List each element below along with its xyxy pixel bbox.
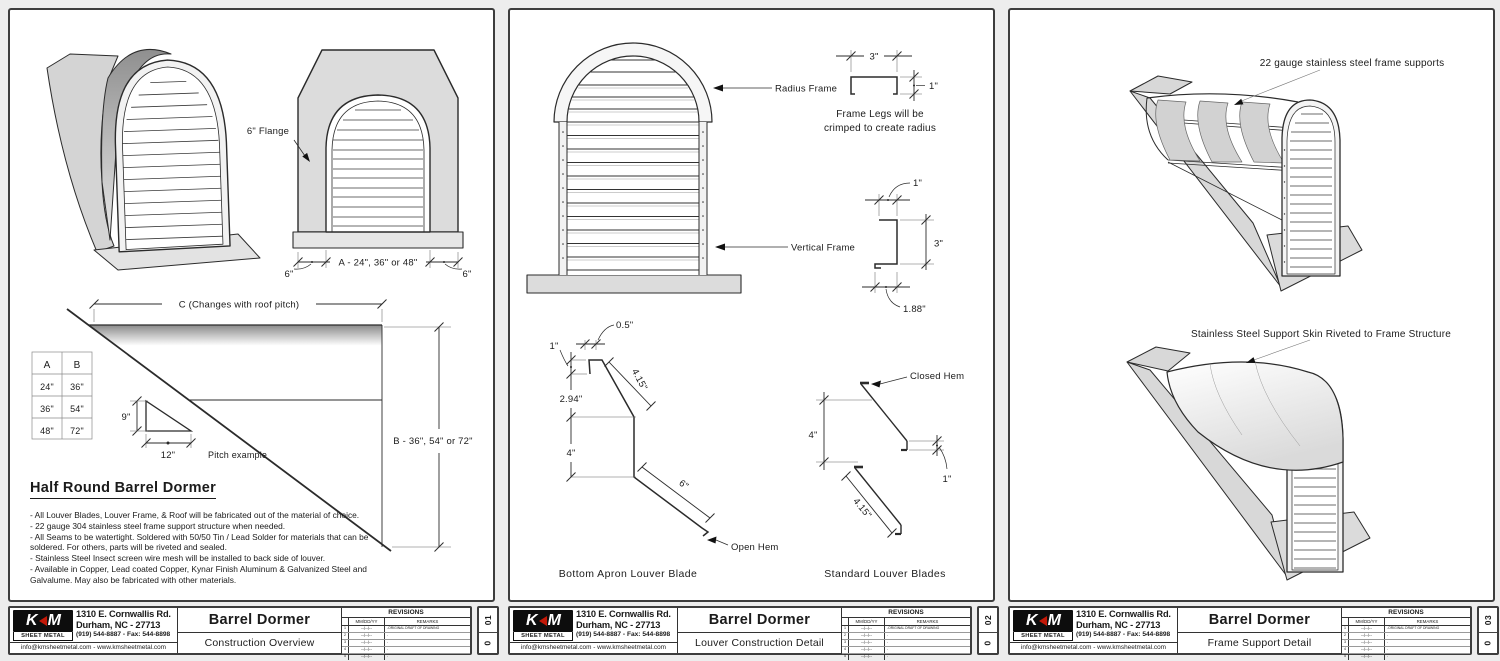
six-right-dim-label: 6"	[462, 269, 471, 280]
rev-row: 5--/--/---	[1342, 654, 1470, 660]
km-logo: KM	[13, 610, 73, 632]
revisions-table: REVISIONS MM/DD/YYREMARKS 1--/--/---ORIG…	[342, 608, 470, 653]
rev-row: 3--/--/---	[842, 640, 970, 647]
rev-remarks-header: REMARKS	[385, 618, 470, 625]
crimp-note-line1: Frame Legs will be	[836, 109, 924, 120]
km-logo: KM	[513, 610, 573, 632]
skin-arrow-icon	[1246, 357, 1256, 363]
skin-label: Stainless Steel Support Skin Riveted to …	[1191, 329, 1451, 340]
rev-row: 2--/--/---	[342, 633, 470, 640]
dim-3in: 3"	[934, 239, 943, 250]
sheet-construction-overview: 6" Flange A - 24", 36" or 48" 6" 6" C (C…	[8, 0, 503, 661]
iso-louver-face	[113, 58, 231, 252]
company-cell: KM SHEET METAL 1310 E. Cornwallis Rd. Du…	[1010, 608, 1178, 653]
rev-remarks-header: REMARKS	[1385, 618, 1470, 625]
supports-annotation: 22 gauge stainless steel frame supports	[1234, 58, 1444, 105]
dim-1in: 1"	[913, 178, 922, 189]
address-line2: Durham, NC - 27713	[576, 620, 676, 631]
rev-date-header: MM/DD/YY	[1349, 618, 1385, 625]
rev-num-col	[1342, 618, 1349, 625]
logo-arrow-icon	[39, 616, 47, 626]
phone-line: (919) 544-8887 - Fax: 544-8898	[76, 631, 176, 639]
contact-line: info@kmsheetmetal.com - www.kmsheetmetal…	[10, 642, 177, 653]
vertical-frame-label: Vertical Frame	[791, 243, 855, 254]
rev-date-header: MM/DD/YY	[849, 618, 885, 625]
logo-tagline: SHEET METAL	[513, 632, 573, 641]
revisions-header: REVISIONS	[842, 608, 970, 618]
six-left-dim-label: 6"	[284, 269, 293, 280]
table-cell: 48"	[40, 426, 54, 436]
revisions-header: REVISIONS	[342, 608, 470, 618]
louver-drawing-canvas: Radius Frame Vertical Frame 3" 1" Frame …	[510, 10, 993, 600]
radius-frame-profile	[836, 50, 925, 101]
table-header-b: B	[74, 360, 81, 371]
sheet-louver-detail: Radius Frame Vertical Frame 3" 1" Frame …	[508, 0, 1003, 661]
revision-number: 0	[1483, 640, 1493, 645]
crimp-note-line2: crimped to create radius	[824, 123, 936, 134]
sheet-subtitle: Construction Overview	[178, 633, 341, 653]
revisions-subheader: MM/DD/YYREMARKS	[842, 618, 970, 626]
address-line2: Durham, NC - 27713	[76, 620, 176, 631]
title-cell: Barrel Dormer Frame Support Detail	[1178, 608, 1342, 653]
support-skin-surface	[1167, 362, 1343, 470]
phone-line: (919) 544-8887 - Fax: 544-8898	[576, 631, 676, 639]
frame-support-ribs	[1156, 100, 1284, 163]
logo-k: K	[1026, 612, 1037, 630]
table-cell: 36"	[40, 404, 54, 414]
iso-dormer-view	[47, 49, 260, 270]
frame-skeleton-iso	[1130, 76, 1362, 291]
rise-dim-label: 9"	[121, 412, 130, 423]
run-dim-label: 12"	[161, 450, 176, 461]
radius-frame-arrow-icon	[713, 85, 723, 92]
dim-415in: 4.15"	[629, 367, 649, 392]
apron-blade-caption: Bottom Apron Louver Blade	[559, 568, 697, 580]
contact-line: info@kmsheetmetal.com - www.kmsheetmetal…	[510, 642, 677, 653]
vertical-frame-profile	[862, 183, 934, 307]
table-header-a: A	[44, 360, 51, 371]
closed-hem-label: Closed Hem	[910, 371, 964, 382]
sheet-number-box: 01 0	[477, 606, 499, 655]
sheet-subtitle: Louver Construction Detail	[678, 633, 841, 653]
closed-hem-arrow-icon	[871, 381, 881, 388]
km-logo: KM	[1013, 610, 1073, 632]
dim-1in: 1"	[942, 474, 951, 485]
standard-blades-caption: Standard Louver Blades	[824, 568, 945, 580]
rev-row: 4--/--/---	[1342, 647, 1470, 654]
front-elevation	[293, 50, 463, 248]
dim-4in: 4"	[566, 448, 575, 459]
rev-row: 1--/--/---ORIGINAL DRAFT OF DRAWING	[1342, 626, 1470, 633]
logo-arrow-icon	[1039, 616, 1047, 626]
open-hem-arrow-icon	[707, 537, 717, 544]
drawing-notes: - All Louver Blades, Louver Frame, & Roo…	[30, 510, 384, 586]
supports-label: 22 gauge stainless steel frame supports	[1260, 58, 1445, 69]
drawing-area-louver: Radius Frame Vertical Frame 3" 1" Frame …	[508, 8, 995, 602]
width-a-dim-label: A - 24", 36" or 48"	[339, 258, 418, 269]
logo-m: M	[548, 612, 560, 630]
sheet-title: Barrel Dormer	[678, 608, 841, 633]
standard-blades-profile	[816, 377, 947, 538]
rev-row: 1--/--/---ORIGINAL DRAFT OF DRAWING	[842, 626, 970, 633]
rev-row: 4--/--/---	[342, 647, 470, 654]
table-cell: 54"	[70, 404, 84, 414]
rev-row: 5--/--/---	[842, 654, 970, 660]
dim-294in: 2.94"	[560, 394, 583, 405]
rev-date-header: MM/DD/YY	[349, 618, 385, 625]
company-cell: KM SHEET METAL 1310 E. Cornwallis Rd. Du…	[10, 608, 178, 653]
sheet-number: 01	[483, 615, 493, 625]
revisions-header: REVISIONS	[1342, 608, 1470, 618]
rev-num-col	[842, 618, 849, 625]
address-line1: 1310 E. Cornwallis Rd.	[76, 609, 176, 620]
logo-arrow-icon	[539, 616, 547, 626]
title-block: KM SHEET METAL 1310 E. Cornwallis Rd. Du…	[508, 606, 972, 655]
pitch-triangle	[146, 401, 191, 431]
rev-num-col	[342, 618, 349, 625]
note-line: - Available in Copper, Lead coated Coppe…	[30, 564, 384, 586]
sheet-number: 02	[983, 615, 993, 625]
dim-1in: 1"	[549, 341, 558, 352]
title-cell: Barrel Dormer Construction Overview	[178, 608, 342, 653]
frame-labels	[713, 85, 788, 251]
revisions-table: REVISIONS MM/DD/YYREMARKS 1--/--/---ORIG…	[1342, 608, 1470, 653]
dim-1in: 1"	[929, 81, 938, 92]
dim-3in: 3"	[869, 52, 878, 63]
note-line: - All Seams to be watertight. Soldered w…	[30, 532, 384, 554]
logo-m: M	[48, 612, 60, 630]
open-hem-label: Open Hem	[731, 542, 779, 553]
height-b-dim-label: B - 36", 54" or 72"	[393, 436, 472, 447]
logo-tagline: SHEET METAL	[13, 632, 73, 641]
span-c-dim-label: C (Changes with roof pitch)	[179, 300, 300, 311]
note-line: - 22 gauge 304 stainless steel frame sup…	[30, 521, 384, 532]
dim-05in: 0.5"	[616, 320, 633, 331]
dim-4in: 4"	[808, 430, 817, 441]
sheet-number-box: 02 0	[977, 606, 999, 655]
drawing-area-overview: 6" Flange A - 24", 36" or 48" 6" 6" C (C…	[8, 8, 495, 602]
vertical-frame-arrow-icon	[715, 244, 725, 251]
sheet-subtitle: Frame Support Detail	[1178, 633, 1341, 653]
radius-frame-label: Radius Frame	[775, 84, 837, 95]
supports-arrow-icon	[1234, 99, 1243, 105]
rev-row: 3--/--/---	[342, 640, 470, 647]
revisions-table: REVISIONS MM/DD/YYREMARKS 1--/--/---ORIG…	[842, 608, 970, 653]
rev-row: 3--/--/---	[1342, 640, 1470, 647]
address-line2: Durham, NC - 27713	[1076, 620, 1176, 631]
rev-remarks-header: REMARKS	[885, 618, 970, 625]
revision-number: 0	[983, 640, 993, 645]
skin-annotation: Stainless Steel Support Skin Riveted to …	[1191, 329, 1451, 363]
louver-frame-elevation	[527, 43, 741, 293]
logo-k: K	[26, 612, 37, 630]
address-line1: 1310 E. Cornwallis Rd.	[1076, 609, 1176, 620]
rev-row: 2--/--/---	[1342, 633, 1470, 640]
sheet-frame-support-detail: 22 gauge stainless steel frame supports	[1008, 0, 1500, 661]
drawing-heading: Half Round Barrel Dormer	[30, 480, 216, 499]
address-line1: 1310 E. Cornwallis Rd.	[576, 609, 676, 620]
note-line: - All Louver Blades, Louver Frame, & Roo…	[30, 510, 384, 521]
revisions-subheader: MM/DD/YYREMARKS	[342, 618, 470, 626]
title-block: KM SHEET METAL 1310 E. Cornwallis Rd. Du…	[8, 606, 472, 655]
phone-line: (919) 544-8887 - Fax: 544-8898	[1076, 631, 1176, 639]
rev-row: 1--/--/---ORIGINAL DRAFT OF DRAWING	[342, 626, 470, 633]
table-cell: 72"	[70, 426, 84, 436]
dim-6in: 6"	[677, 478, 691, 492]
sheet-title: Barrel Dormer	[1178, 608, 1341, 633]
pitch-example-label: Pitch example	[208, 450, 267, 460]
sheet-number-box: 03 0	[1477, 606, 1499, 655]
table-cell: 36"	[70, 382, 84, 392]
logo-k: K	[526, 612, 537, 630]
drawing-area-frame: 22 gauge stainless steel frame supports	[1008, 8, 1495, 602]
rev-row: 5--/--/---	[342, 654, 470, 660]
frame-skin-iso	[1127, 347, 1370, 580]
company-cell: KM SHEET METAL 1310 E. Cornwallis Rd. Du…	[510, 608, 678, 653]
note-line: - Stainless Steel Insect screen wire mes…	[30, 553, 384, 564]
sheet-number: 03	[1483, 615, 1493, 625]
contact-line: info@kmsheetmetal.com - www.kmsheetmetal…	[1010, 642, 1177, 653]
rev-row: 4--/--/---	[842, 647, 970, 654]
revision-number: 0	[483, 640, 493, 645]
title-block: KM SHEET METAL 1310 E. Cornwallis Rd. Du…	[1008, 606, 1472, 655]
apron-blade-profile	[560, 325, 728, 545]
dim-415in: 4.15"	[850, 496, 873, 521]
table-cell: 24"	[40, 382, 54, 392]
frame-drawing-canvas: 22 gauge stainless steel frame supports	[1010, 10, 1493, 600]
logo-tagline: SHEET METAL	[1013, 632, 1073, 641]
sheet-title: Barrel Dormer	[178, 608, 341, 633]
rev-row: 2--/--/---	[842, 633, 970, 640]
flange-dim-label: 6" Flange	[247, 126, 289, 137]
dim-188in: 1.88"	[903, 304, 926, 315]
revisions-subheader: MM/DD/YYREMARKS	[1342, 618, 1470, 626]
title-cell: Barrel Dormer Louver Construction Detail	[678, 608, 842, 653]
logo-m: M	[1048, 612, 1060, 630]
